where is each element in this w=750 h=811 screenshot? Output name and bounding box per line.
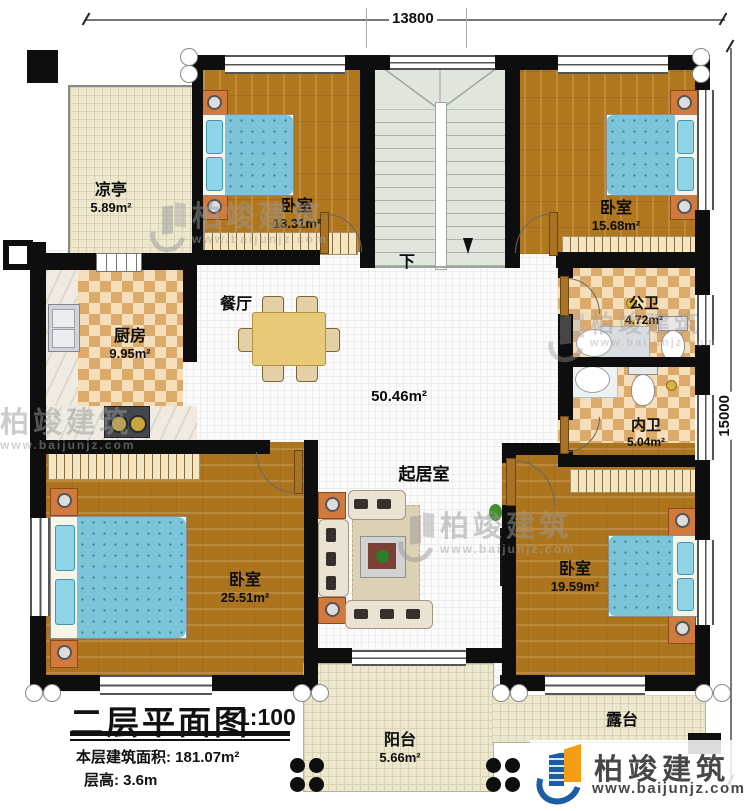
brand-logo: 柏竣建筑 www.baijunjz.com	[530, 740, 750, 802]
wall	[502, 505, 516, 691]
wall	[317, 648, 352, 663]
wall	[695, 460, 710, 540]
window	[390, 55, 495, 70]
sofa-cushion	[326, 552, 336, 566]
sofa-cushion	[406, 609, 420, 619]
window	[100, 675, 212, 695]
sofa-icon	[345, 600, 433, 629]
duvet	[609, 536, 673, 616]
room-terrace	[492, 695, 706, 743]
title-rule-thin	[70, 739, 290, 741]
side-table-icon	[318, 597, 346, 624]
lamp-icon	[677, 199, 692, 214]
nightstand-icon	[50, 488, 78, 516]
plant-icon	[489, 504, 502, 521]
column-dot	[309, 758, 324, 773]
label-public-bath: 公卫 4.72m²	[625, 292, 663, 327]
label-living-area: 50.46m²	[371, 388, 427, 405]
railing-post-icon	[180, 65, 198, 83]
label-living-room: 起居室	[399, 460, 450, 485]
stove-icon	[104, 406, 150, 438]
lamp-icon	[57, 493, 72, 508]
duvet	[225, 115, 293, 195]
lamp-icon	[677, 95, 692, 110]
floor-area-line: 本层建筑面积: 181.07m²	[76, 746, 239, 767]
dimension-guide	[466, 8, 467, 48]
wall	[30, 616, 46, 691]
window	[697, 90, 714, 210]
bed-icon	[608, 535, 698, 617]
lamp-icon	[325, 497, 340, 512]
label-pavilion: 凉亭 5.89m²	[90, 176, 131, 215]
dining-table-icon	[252, 312, 326, 366]
wall	[558, 364, 573, 420]
drawing-scale: 1:100	[237, 704, 296, 731]
wall	[192, 62, 203, 257]
pavilion-steps	[96, 253, 142, 272]
sofa-cushion	[326, 528, 336, 542]
lamp-icon	[675, 621, 690, 636]
label-bedroom-top-right: 卧室 15.68m²	[592, 194, 640, 233]
plant-icon	[376, 550, 389, 563]
nightstand-icon	[200, 90, 228, 116]
window	[697, 540, 714, 625]
window	[545, 675, 645, 695]
washbasin-icon	[576, 329, 612, 357]
label-dining: 餐厅	[220, 290, 252, 314]
dimension-right-value: 15000	[716, 392, 733, 440]
wall	[46, 440, 270, 454]
railing-post-icon	[713, 684, 731, 702]
wall	[558, 357, 695, 367]
kitchen-sink-icon	[48, 304, 80, 352]
duvet	[77, 517, 186, 638]
nightstand-icon	[670, 90, 698, 116]
window	[225, 55, 345, 74]
railing-post-icon	[692, 65, 710, 83]
room-pavilion	[68, 85, 197, 259]
window	[697, 295, 714, 345]
pillow	[677, 578, 694, 611]
lamp-icon	[207, 95, 222, 110]
wardrobe-icon	[570, 469, 697, 493]
label-balcony: 阳台 5.66m²	[379, 726, 420, 765]
sofa-icon	[348, 490, 406, 520]
sliding-door	[352, 650, 466, 666]
column-dot	[486, 758, 501, 773]
brand-logo-icon	[536, 742, 588, 796]
wall	[695, 210, 710, 295]
stair-direction-arrow-icon	[463, 238, 473, 254]
pillow	[677, 542, 694, 575]
burner	[110, 415, 128, 433]
balcony-column-cluster	[290, 758, 326, 794]
label-inner-bath: 内卫 5.04m²	[627, 414, 665, 449]
nightstand-icon	[200, 194, 228, 220]
wall	[192, 250, 320, 265]
stair-flight-right	[445, 110, 505, 268]
lamp-icon	[207, 199, 222, 214]
window	[30, 518, 50, 616]
title-rule-thick	[70, 731, 290, 736]
sofa-cushion	[354, 499, 368, 509]
stairs-down-label: 下	[399, 248, 415, 272]
label-bedroom-top-left: 卧室 13.31m²	[273, 192, 321, 231]
railing-post-icon	[695, 684, 713, 702]
lamp-icon	[325, 602, 340, 617]
dimension-top-value: 13800	[389, 10, 437, 27]
side-table-icon	[318, 492, 346, 519]
stair-flight-left	[375, 110, 435, 268]
window	[697, 395, 714, 460]
ceiling-light-icon	[666, 380, 677, 391]
railing-post-icon	[311, 684, 329, 702]
door-leaf	[294, 450, 303, 494]
railing-post-icon	[43, 684, 61, 702]
railing-post-icon	[293, 684, 311, 702]
washbasin-icon	[575, 366, 610, 393]
nightstand-icon	[50, 640, 78, 668]
wall-protrusion-inner	[9, 246, 27, 264]
wall	[46, 253, 96, 270]
wall	[304, 440, 318, 691]
door-leaf	[549, 212, 558, 256]
column-dot	[309, 777, 324, 792]
column-dot	[290, 758, 305, 773]
toilet-icon	[631, 374, 655, 406]
stairs	[375, 62, 505, 268]
sofa-cushion	[377, 499, 391, 509]
pillow	[55, 525, 75, 571]
burner	[129, 415, 147, 433]
sofa-icon	[318, 519, 349, 597]
stairs-edge-line	[375, 266, 505, 268]
nightstand-icon	[668, 508, 696, 536]
wardrobe-icon	[48, 452, 200, 480]
railing-post-icon	[510, 684, 528, 702]
railing-post-icon	[492, 684, 510, 702]
corner-column	[27, 50, 58, 83]
label-bedroom-bottom-right: 卧室 19.59m²	[551, 555, 599, 594]
logo-building-blue	[549, 752, 564, 786]
wall	[556, 252, 697, 268]
lamp-icon	[675, 513, 690, 528]
stair-handrail	[435, 102, 447, 270]
bed-icon	[606, 114, 698, 196]
pillow	[206, 120, 223, 154]
pillow	[55, 579, 75, 625]
wall	[360, 62, 375, 268]
coffee-table-icon	[360, 536, 406, 578]
column-dot	[486, 777, 501, 792]
balcony-column-cluster	[486, 758, 522, 794]
floor-height-line: 层高: 3.6m	[84, 769, 157, 790]
sofa-cushion	[354, 609, 368, 619]
railing-post-icon	[180, 48, 198, 66]
brand-url: www.baijunjz.com	[592, 780, 745, 797]
wall	[695, 345, 710, 395]
column-dot	[505, 758, 520, 773]
pillow	[677, 157, 694, 191]
railing-post-icon	[25, 684, 43, 702]
nightstand-icon	[670, 194, 698, 220]
bed-icon	[50, 516, 187, 639]
logo-building-orange	[564, 744, 581, 782]
wall	[558, 455, 695, 467]
column-dot	[290, 777, 305, 792]
dimension-guide	[366, 8, 367, 48]
sofa-cushion	[380, 609, 394, 619]
column-dot	[505, 777, 520, 792]
nightstand-icon	[668, 616, 696, 644]
pillow	[677, 120, 694, 154]
page-title: 二层平面图	[70, 696, 250, 744]
sink-basin	[52, 329, 75, 348]
railing-post-icon	[692, 48, 710, 66]
label-terrace: 露台	[606, 706, 638, 730]
window	[558, 55, 668, 74]
wall	[466, 648, 502, 663]
label-kitchen: 厨房 9.95m²	[109, 322, 150, 361]
sofa-cushion	[326, 576, 336, 590]
duvet	[607, 115, 675, 195]
label-bedroom-bottom-left: 卧室 25.51m²	[221, 566, 269, 605]
pillow	[206, 157, 223, 191]
lamp-icon	[57, 645, 72, 660]
wall	[183, 270, 197, 362]
sink-basin	[52, 309, 75, 328]
floor-plan-page: 凉亭 5.89m² 卧室 13.31m² 卧室 15.68m² 厨房 9.95m…	[0, 0, 750, 811]
wall	[30, 242, 46, 518]
bed-icon	[202, 114, 294, 196]
wall	[140, 253, 197, 270]
